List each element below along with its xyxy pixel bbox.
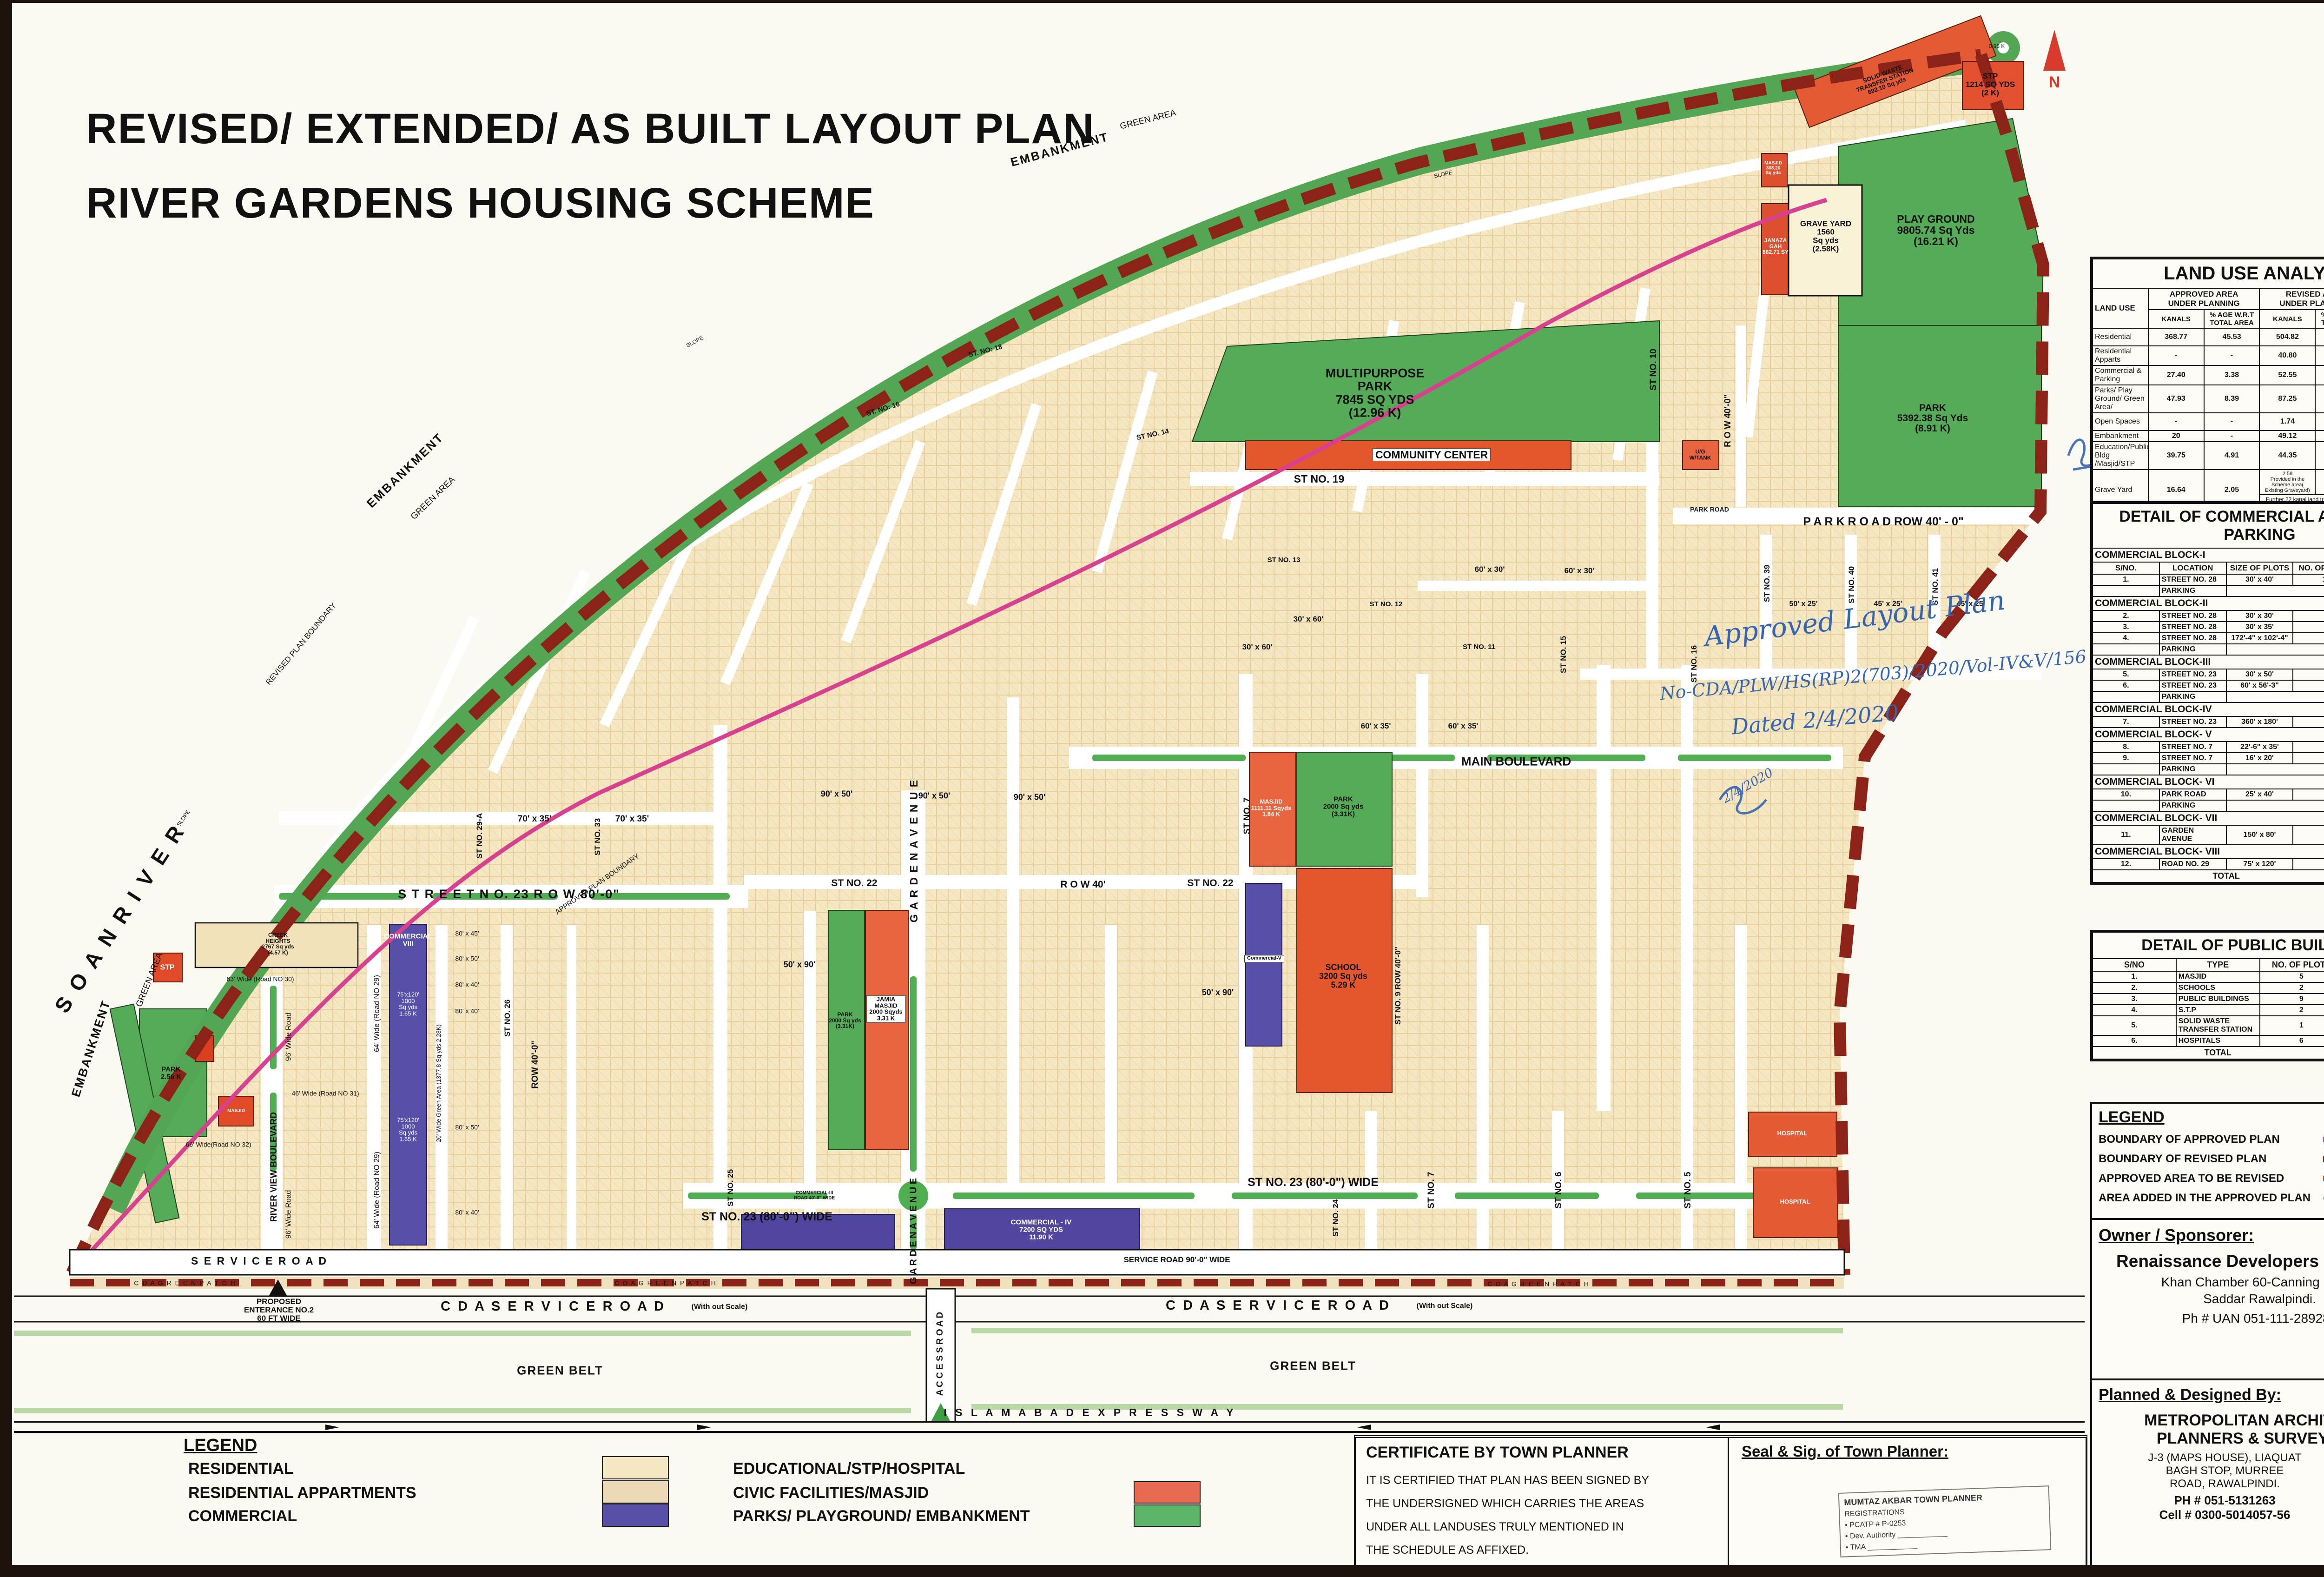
table-row: COMMERCIAL BLOCK-I (2093, 548, 2324, 562)
commercial-area-table: DETAIL OF COMMERCIAL AREA AND PARKINGCOM… (2090, 501, 2324, 885)
legend-swatch (1134, 1481, 1201, 1504)
table-row: 4.S.T.P22.65 (2093, 1005, 2324, 1016)
table-cell: Commercial & Parking (2093, 365, 2148, 385)
table-row: 3.STREET NO. 2830' x 35'50.96 (2093, 622, 2324, 633)
table-cell: STREET NO. 28 (2159, 574, 2226, 585)
certificate-line: THE SCHEDULE AS AFFIXED. (1366, 1538, 1719, 1562)
table-cell: ROAD NO. 29 (2159, 859, 2226, 870)
table-cell: 368.77 (2148, 328, 2204, 346)
certificate-box: CERTIFICATE BY TOWN PLANNER IT IS CERTIF… (1354, 1435, 2087, 1570)
table-row: LAND USE ANALYSIS (2093, 259, 2324, 288)
table-cell: COMMERCIAL BLOCK-IV (2093, 702, 2324, 716)
boundary-legend-item: BOUNDARY OF APPROVED PLAN (2099, 1133, 2324, 1146)
table-row: COMMERCIAL BLOCK- VII (2093, 811, 2324, 825)
table-cell: PARKING (2159, 644, 2226, 655)
planned-ph: PH # 051-5131263 (2092, 1493, 2324, 1508)
table-cell: Residential (2093, 328, 2148, 346)
table-cell: 87.25 (2259, 385, 2315, 413)
table-cell: PARKING (2159, 691, 2226, 702)
table-cell: 27.40 (2148, 365, 2204, 385)
table-cell: 60' x 56'-3" (2226, 680, 2293, 691)
boundary-legend-title: LEGEND (2099, 1108, 2324, 1126)
table-cell: 30' x 40' (2226, 574, 2293, 585)
plan-title-line1: REVISED/ EXTENDED/ AS BUILT LAYOUT PLAN (86, 105, 1095, 153)
table-cell: 44.35 (2259, 442, 2315, 470)
table-cell: 5. (2093, 669, 2159, 680)
table-cell: LOCATION (2159, 562, 2226, 574)
table-row: DETAIL OF PUBLIC BUILDINGS (2093, 932, 2324, 959)
public-buildings-table: DETAIL OF PUBLIC BUILDINGSS/NOTYPENO. OF… (2090, 930, 2324, 1061)
table-row: Residential368.7745.53504.8246.78Not mor… (2093, 328, 2324, 346)
table-cell: NO. OF PLOTS (2260, 959, 2324, 971)
table-row: 2.STREET NO. 2830' x 30'81.32 (2093, 610, 2324, 622)
table-row: COMMERCIAL BLOCK-II (2093, 596, 2324, 610)
table-cell: 4. (2093, 633, 2159, 644)
table-row: 6.STREET NO. 2360' x 56'-3"42.48 (2093, 680, 2324, 691)
table-row: COMMERCIAL BLOCK- V (2093, 728, 2324, 742)
planned-addr2: BAGH STOP, MURREE (2092, 1464, 2324, 1478)
certificate-title: CERTIFICATE BY TOWN PLANNER (1366, 1444, 1629, 1462)
table-cell: 150' x 80' (2226, 825, 2293, 845)
legend-swatch (602, 1504, 669, 1527)
table-cell: 1 (2293, 789, 2324, 800)
table-cell: 3.38 (2204, 365, 2260, 385)
table-row: 5.STREET NO. 2330' x 50'82.20 (2093, 669, 2324, 680)
table-cell: 9 (2260, 994, 2324, 1005)
table-cell: 52.55 (2259, 365, 2315, 385)
table-cell: DETAIL OF COMMERCIAL AREA AND PARKING (2093, 504, 2324, 548)
table-cell: 4. (2093, 1005, 2176, 1016)
town-planner-stamp: MUMTAZ AKBAR TOWN PLANNERREGISTRATIONS• … (1838, 1485, 2052, 1557)
table-cell: 2 (2260, 1005, 2324, 1016)
table-row: Residential Apparts--40.803.78Not more t… (2093, 346, 2324, 365)
table-cell: 20 (2148, 431, 2204, 442)
table-cell: - (2148, 413, 2204, 431)
table-cell: 0.16 (2315, 413, 2324, 431)
table-cell: TOTAL (2093, 1047, 2324, 1059)
table-cell: MASJID (2176, 971, 2260, 982)
table-cell: 30' x 30' (2226, 610, 2293, 622)
table-cell: 5. (2093, 1016, 2176, 1035)
table-cell: 10. (2093, 789, 2159, 800)
table-cell: COMMERCIAL BLOCK-II (2093, 596, 2324, 610)
table-row: PARKING0.07 (2093, 800, 2324, 811)
table-cell: 2. (2093, 610, 2159, 622)
table-row: 10.PARK ROAD25' x 40'10.18 (2093, 789, 2324, 800)
table-row: 12.ROAD NO. 2975' x 120'58.25 (2093, 859, 2324, 870)
table-row: PARKING1.62 (2093, 764, 2324, 775)
boundary-legend-item: BOUNDARY OF REVISED PLAN (2099, 1153, 2324, 1166)
table-cell: APPROVED AREA UNDER PLANNING (2148, 288, 2260, 310)
table-cell: 8 (2293, 669, 2324, 680)
table-cell: - (2148, 346, 2204, 365)
table-cell: SOLID WASTE TRANSFER STATION (2176, 1016, 2260, 1035)
table-cell: STREET NO. 28 (2159, 610, 2226, 622)
table-row: 1.STREET NO. 2830' x 40'173.75 (2093, 574, 2324, 585)
table-cell: PARKING (2159, 800, 2226, 811)
table-cell: 1. (2093, 971, 2176, 982)
table-row: Grave Yard16.642.052.58 Provided in the … (2093, 470, 2324, 495)
table-cell: 8 (2293, 742, 2324, 753)
table-cell: 6. (2093, 680, 2159, 691)
table-cell: STREET NO. 28 (2159, 622, 2226, 633)
table-cell: 3.78 (2315, 346, 2324, 365)
table-cell: LAND USE ANALYSIS (2093, 259, 2324, 288)
table-cell: KANALS (2259, 310, 2315, 328)
table-cell: 75' x 120' (2226, 859, 2293, 870)
table-cell: COMMERCIAL BLOCK- VII (2093, 811, 2324, 825)
table-cell: 3. (2093, 622, 2159, 633)
planned-name2: PLANNERS & SURVEYORS (2092, 1430, 2324, 1448)
boundary-legend-label: AREA ADDED IN THE APPROVED PLAN (2099, 1192, 2311, 1205)
table-cell (2093, 644, 2159, 655)
legend-swatch (1134, 1504, 1201, 1527)
landuse-legend-title: LEGEND (184, 1436, 1243, 1456)
table-row: 1.MASJID56.87 (2093, 971, 2324, 982)
owner-addr2: Saddar Rawalpindi. (2092, 1292, 2324, 1306)
table-cell (2226, 764, 2324, 775)
planned-addr3: ROAD, RAWALPINDI. (2092, 1478, 2324, 1491)
table-cell: 2. (2093, 982, 2176, 994)
table-cell: LAND USE (2093, 288, 2148, 328)
table-row: S/NO.LOCATIONSIZE OF PLOTSNO. OF PLOTSAR… (2093, 562, 2324, 574)
table-cell: 1 (2293, 633, 2324, 644)
planned-name1: METROPOLITAN ARCHITECTS (2092, 1411, 2324, 1430)
table-cell: 360' x 180' (2226, 716, 2293, 728)
table-cell: STREET NO. 7 (2159, 753, 2226, 764)
planned-by-box: Planned & Designed By: METROPOLITAN ARCH… (2090, 1378, 2324, 1568)
table-row: PARKING5.24 (2093, 691, 2324, 702)
table-row: LAND USEAPPROVED AREA UNDER PLANNINGREVI… (2093, 288, 2324, 310)
table-cell: 25' x 40' (2226, 789, 2293, 800)
table-cell: 4.55 (2315, 431, 2324, 442)
table-cell: TOTAL (2093, 870, 2324, 882)
planned-cell: Cell # 0300-5014057-56 (2092, 1508, 2324, 1522)
table-cell: Embankment (2093, 431, 2148, 442)
table-cell: KANALS (2148, 310, 2204, 328)
legend-label: RESIDENTIAL APPARTMENTS (188, 1484, 416, 1502)
table-cell: COMMERCIAL BLOCK-III (2093, 655, 2324, 669)
table-cell: 8. (2093, 742, 2159, 753)
table-row: Embankment20-49.124.55- (2093, 431, 2324, 442)
legend-label: CIVIC FACILITIES/MASJID (733, 1484, 929, 1502)
boundary-legend-label: BOUNDARY OF APPROVED PLAN (2099, 1133, 2280, 1146)
table-cell: STREET NO. 23 (2159, 716, 2226, 728)
table-cell: 49.12 (2259, 431, 2315, 442)
table-cell: % AGE W.R.T TOTAL AREA (2204, 310, 2260, 328)
table-row: Parks/ Play Ground/ Green Area/47.938.39… (2093, 385, 2324, 413)
owner-name: Renaissance Developers (Pvt.) Ltd. (2092, 1252, 2324, 1271)
table-cell (2226, 585, 2324, 596)
table-cell: Residential Apparts (2093, 346, 2148, 365)
table-cell: PARK ROAD (2159, 789, 2226, 800)
owner-phone: Ph # UAN 051-111-289289 (2092, 1311, 2324, 1326)
table-cell: S/NO. (2093, 562, 2159, 574)
table-cell: 6. (2093, 1035, 2176, 1047)
table-cell: 5 (2260, 971, 2324, 982)
table-row: TOTAL52.55 (2093, 870, 2324, 882)
table-cell: 4 (2293, 680, 2324, 691)
table-cell: REVISED AREA UNDER PLANNING (2259, 288, 2324, 310)
table-cell: 46.78 (2315, 328, 2324, 346)
table-cell: Education/Public Bldg /Masjid/STP (2093, 442, 2148, 470)
scheme-map: ARCHITECTS PLANNERS & SURVEYORS METROPOL… (0, 0, 2324, 1577)
table-row: Education/Public Bldg /Masjid/STP39.754.… (2093, 442, 2324, 470)
table-row: 3.PUBLIC BUILDINGS910.70 (2093, 994, 2324, 1005)
table-cell: - (2204, 431, 2260, 442)
table-cell: 47.93 (2148, 385, 2204, 413)
table-cell (2093, 691, 2159, 702)
boundary-legend: LEGEND BOUNDARY OF APPROVED PLANBOUNDARY… (2090, 1102, 2324, 1222)
table-cell: 2.58 Provided in the Scheme area( Existi… (2259, 470, 2315, 495)
legend-label: COMMERCIAL (188, 1507, 297, 1525)
table-cell: STREET NO. 23 (2159, 680, 2226, 691)
table-cell: 6 (2260, 1035, 2324, 1047)
table-cell: 5 (2293, 622, 2324, 633)
boundary-legend-item: APPROVED AREA TO BE REVISED (2099, 1172, 2324, 1185)
table-cell (2226, 644, 2324, 655)
table-row: Commercial & Parking27.403.3852.554.87No… (2093, 365, 2324, 385)
table-row: PARKING4.40 (2093, 644, 2324, 655)
table-cell: SCHOOLS (2176, 982, 2260, 994)
table-cell: COMMERCIAL BLOCK- V (2093, 728, 2324, 742)
table-cell: 8.08 (2315, 385, 2324, 413)
certificate-line: IT IS CERTIFIED THAT PLAN HAS BEEN SIGNE… (1366, 1469, 1719, 1492)
table-cell: TYPE (2176, 959, 2260, 971)
table-row: 9.STREET NO. 716' x 20'30.17 (2093, 753, 2324, 764)
certificate-line: THE UNDERSIGNED WHICH CARRIES THE AREAS (1366, 1492, 1719, 1515)
table-cell: 11. (2093, 825, 2159, 845)
table-cell: PARKING (2159, 585, 2226, 596)
table-cell: 172'-4" x 102'-4" (2226, 633, 2293, 644)
table-cell: 0.24 (2315, 470, 2324, 495)
table-row: S/NOTYPENO. OF PLOTSAREA (K) (2093, 959, 2324, 971)
table-cell: 45.53 (2204, 328, 2260, 346)
table-cell (2093, 764, 2159, 775)
table-cell: % AGE W.R.T TOTAL AREA (2315, 310, 2324, 328)
table-cell: 1 (2260, 1016, 2324, 1035)
boundary-legend-label: APPROVED AREA TO BE REVISED (2099, 1172, 2284, 1185)
table-row: COMMERCIAL BLOCK- VI (2093, 775, 2324, 789)
planned-title: Planned & Designed By: (2099, 1386, 2324, 1404)
table-row: 2.SCHOOLS212.51 (2093, 982, 2324, 994)
table-cell: 504.82 (2259, 328, 2315, 346)
table-row: COMMERCIAL BLOCK-III (2093, 655, 2324, 669)
table-cell: 2 (2260, 982, 2324, 994)
table-cell: COMMERCIAL BLOCK-I (2093, 548, 2324, 562)
landuse-legend: LEGEND RESIDENTIALRESIDENTIAL APPARTMENT… (184, 1436, 1243, 1543)
boundary-legend-item: AREA ADDED IN THE APPROVED PLAN (2099, 1192, 2324, 1205)
table-row: COMMERCIAL BLOCK- VIII (2093, 845, 2324, 859)
table-row: 4.STREET NO. 28172'-4" x 102'-4"13.24 (2093, 633, 2324, 644)
planned-addr1: J-3 (MAPS HOUSE), LIAQUAT (2092, 1451, 2324, 1464)
table-cell: STREET NO. 23 (2159, 669, 2226, 680)
table-row: 11.GARDEN AVENUE150' x 80'12.20 (2093, 825, 2324, 845)
table-row: 5.SOLID WASTE TRANSFER STATION11.14 (2093, 1016, 2324, 1035)
certificate-line: UNDER ALL LANDUSES TRULY MENTIONED IN (1366, 1515, 1719, 1538)
table-cell: 16' x 20' (2226, 753, 2293, 764)
owner-title: Owner / Sponsorer: (2099, 1226, 2324, 1245)
table-cell: STREET NO. 7 (2159, 742, 2226, 753)
table-cell: 7. (2093, 716, 2159, 728)
table-cell: S.T.P (2176, 1005, 2260, 1016)
table-cell: Parks/ Play Ground/ Green Area/ (2093, 385, 2148, 413)
table-cell: HOSPITALS (2176, 1035, 2260, 1047)
owner-addr1: Khan Chamber 60-Canning Road, (2092, 1275, 2324, 1290)
table-cell (2226, 691, 2324, 702)
table-cell: COMMERCIAL BLOCK- VI (2093, 775, 2324, 789)
table-cell: STREET NO. 28 (2159, 633, 2226, 644)
table-cell: 1.74 (2259, 413, 2315, 431)
certificate-body: IT IS CERTIFIED THAT PLAN HAS BEEN SIGNE… (1366, 1469, 1719, 1562)
table-row: Open Spaces--1.740.16Not more than 3 % (2093, 413, 2324, 431)
plan-title-line2: RIVER GARDENS HOUSING SCHEME (86, 179, 875, 228)
table-cell: 4.11 (2315, 442, 2324, 470)
layout-plan-sheet: ARCHITECTS PLANNERS & SURVEYORS METROPOL… (0, 0, 2324, 1577)
table-row: COMMERCIAL BLOCK-IV (2093, 702, 2324, 716)
table-cell: 5 (2293, 859, 2324, 870)
town-planner-seal-title: Seal & Sig. of Town Planner: (1742, 1443, 1948, 1460)
table-cell: 3. (2093, 994, 2176, 1005)
legend-swatch (602, 1456, 669, 1479)
table-row: 6.HOSPITALS610.99 (2093, 1035, 2324, 1047)
table-cell: 17 (2293, 574, 2324, 585)
table-cell (2093, 585, 2159, 596)
table-row: 8.STREET NO. 722'-6" x 35'81.16 (2093, 742, 2324, 753)
owner-box: Owner / Sponsorer: Renaissance Developer… (2090, 1218, 2324, 1382)
table-cell: 4.91 (2204, 442, 2260, 470)
table-cell (2226, 800, 2324, 811)
table-cell: - (2204, 346, 2260, 365)
boundary-legend-label: BOUNDARY OF REVISED PLAN (2099, 1153, 2266, 1166)
table-row: TOTAL44.35 (2093, 1047, 2324, 1059)
table-cell (2093, 800, 2159, 811)
table-cell: - (2204, 413, 2260, 431)
table-cell: 8.39 (2204, 385, 2260, 413)
table-cell: 30' x 50' (2226, 669, 2293, 680)
table-cell: SIZE OF PLOTS (2226, 562, 2293, 574)
table-cell: PUBLIC BUILDINGS (2176, 994, 2260, 1005)
table-cell: 3 (2293, 753, 2324, 764)
table-cell: 9. (2093, 753, 2159, 764)
table-cell: S/NO (2093, 959, 2176, 971)
table-cell: 39.75 (2148, 442, 2204, 470)
table-cell: 1 (2293, 716, 2324, 728)
legend-label: PARKS/ PLAYGROUND/ EMBANKMENT (733, 1507, 1030, 1525)
table-row: DETAIL OF COMMERCIAL AREA AND PARKING (2093, 504, 2324, 548)
table-cell: 8 (2293, 610, 2324, 622)
table-cell: 1 (2293, 825, 2324, 845)
table-cell: 1. (2093, 574, 2159, 585)
table-cell: DETAIL OF PUBLIC BUILDINGS (2093, 932, 2324, 959)
legend-swatch (602, 1480, 669, 1504)
table-cell: NO. OF PLOTS (2293, 562, 2324, 574)
legend-label: RESIDENTIAL (188, 1460, 294, 1478)
table-cell: 4.87 (2315, 365, 2324, 385)
table-cell: COMMERCIAL BLOCK- VIII (2093, 845, 2324, 859)
table-row: PARKING3.41 (2093, 585, 2324, 596)
table-cell: 12. (2093, 859, 2159, 870)
table-cell: 30' x 35' (2226, 622, 2293, 633)
table-cell: 22'-6" x 35' (2226, 742, 2293, 753)
table-cell: Open Spaces (2093, 413, 2148, 431)
table-row: 7.STREET NO. 23360' x 180'111.90 (2093, 716, 2324, 728)
table-cell: GARDEN AVENUE (2159, 825, 2226, 845)
table-cell: 40.80 (2259, 346, 2315, 365)
legend-label: EDUCATIONAL/STP/HOSPITAL (733, 1460, 965, 1478)
table-cell: PARKING (2159, 764, 2226, 775)
